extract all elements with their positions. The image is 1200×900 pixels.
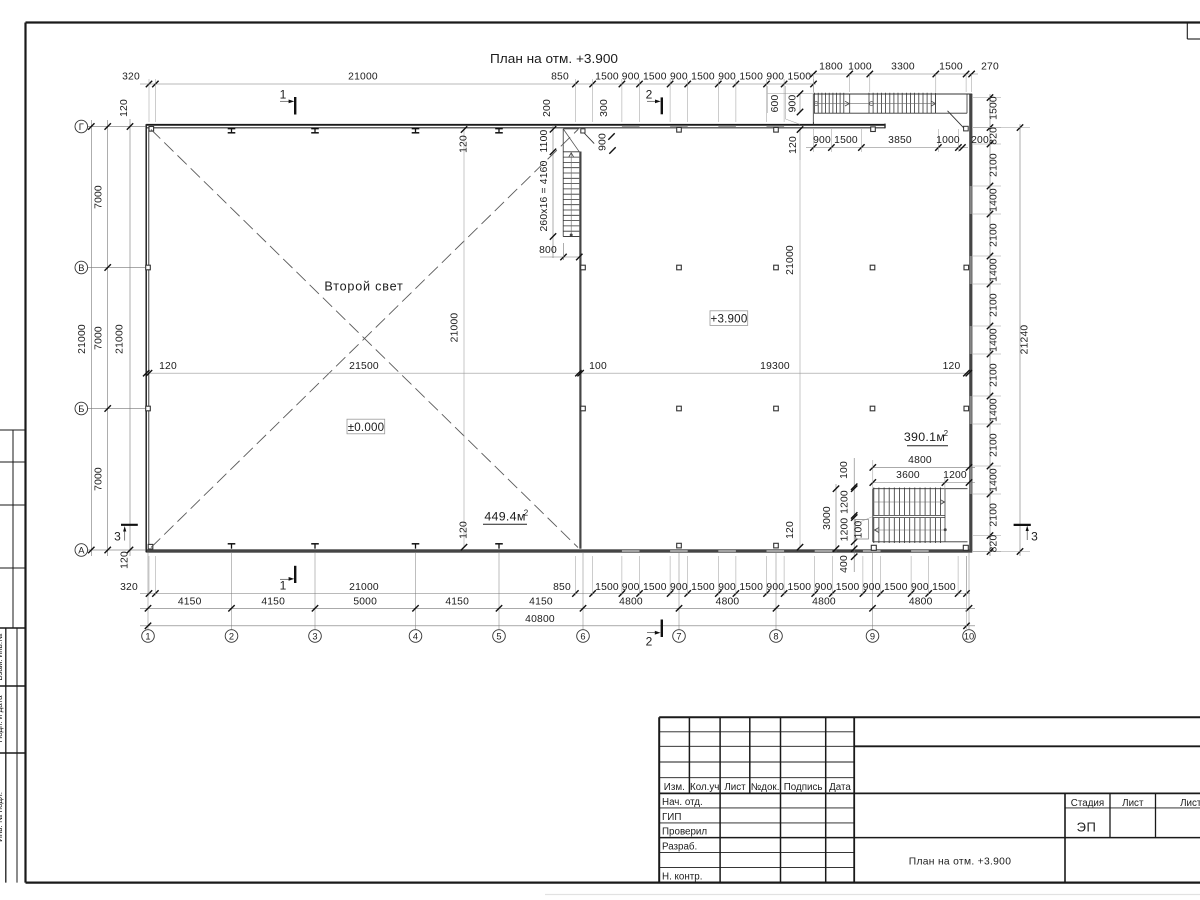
svg-text:4800: 4800 bbox=[908, 455, 932, 466]
svg-text:±0.000: ±0.000 bbox=[348, 421, 385, 434]
svg-text:ЭП: ЭП bbox=[1077, 820, 1097, 835]
svg-text:Подп. и дата: Подп. и дата bbox=[0, 695, 4, 743]
svg-text:800: 800 bbox=[539, 245, 557, 256]
svg-text:План на отм. +3.900: План на отм. +3.900 bbox=[490, 51, 618, 66]
svg-text:1500: 1500 bbox=[884, 582, 908, 593]
svg-text:Стадия: Стадия bbox=[1071, 798, 1104, 809]
svg-text:900: 900 bbox=[766, 582, 784, 593]
svg-text:1500: 1500 bbox=[834, 135, 858, 146]
svg-text:Проверил: Проверил bbox=[662, 827, 707, 838]
svg-text:7000: 7000 bbox=[93, 185, 104, 209]
svg-text:План на отм. +3.900: План на отм. +3.900 bbox=[909, 857, 1011, 868]
svg-text:820: 820 bbox=[989, 535, 1000, 553]
svg-text:Лист: Лист bbox=[724, 782, 746, 793]
svg-text:21500: 21500 bbox=[349, 361, 379, 372]
svg-text:3300: 3300 bbox=[891, 62, 915, 73]
svg-text:1400: 1400 bbox=[989, 258, 1000, 282]
svg-text:21000: 21000 bbox=[785, 245, 796, 275]
svg-text:7000: 7000 bbox=[93, 326, 104, 350]
svg-text:21000: 21000 bbox=[114, 324, 125, 354]
svg-text:320: 320 bbox=[120, 582, 138, 593]
svg-text:3: 3 bbox=[114, 529, 121, 543]
svg-text:21000: 21000 bbox=[77, 324, 88, 354]
svg-text:Н. контр.: Н. контр. bbox=[662, 872, 702, 883]
svg-text:120: 120 bbox=[120, 551, 131, 569]
svg-text:100: 100 bbox=[589, 361, 607, 372]
svg-text:21000: 21000 bbox=[450, 313, 461, 343]
svg-text:4800: 4800 bbox=[812, 597, 836, 608]
svg-text:1500: 1500 bbox=[595, 72, 619, 83]
svg-text:1500: 1500 bbox=[989, 96, 1000, 120]
svg-text:21000: 21000 bbox=[348, 72, 378, 83]
svg-text:8: 8 bbox=[773, 632, 778, 642]
svg-text:1500: 1500 bbox=[691, 582, 715, 593]
svg-text:2: 2 bbox=[944, 429, 949, 438]
svg-text:4150: 4150 bbox=[261, 597, 285, 608]
svg-text:ГИП: ГИП bbox=[662, 812, 681, 823]
svg-text:10: 10 bbox=[964, 632, 974, 642]
svg-text:4150: 4150 bbox=[178, 597, 202, 608]
svg-text:200: 200 bbox=[542, 99, 553, 117]
svg-text:№док.: №док. bbox=[751, 782, 780, 793]
svg-text:1800: 1800 bbox=[819, 62, 843, 73]
svg-text:400: 400 bbox=[839, 555, 850, 573]
svg-text:4150: 4150 bbox=[445, 597, 469, 608]
svg-text:1400: 1400 bbox=[989, 398, 1000, 422]
svg-text:2: 2 bbox=[646, 88, 653, 102]
svg-text:21000: 21000 bbox=[349, 582, 379, 593]
svg-text:Второй свет: Второй свет bbox=[324, 280, 403, 294]
svg-text:260x16 = 4160: 260x16 = 4160 bbox=[539, 160, 550, 231]
svg-text:4800: 4800 bbox=[716, 597, 740, 608]
svg-text:1200: 1200 bbox=[840, 490, 851, 514]
svg-text:1500: 1500 bbox=[643, 582, 667, 593]
svg-text:100: 100 bbox=[854, 521, 865, 539]
svg-text:1400: 1400 bbox=[989, 328, 1000, 352]
svg-text:В: В bbox=[78, 263, 84, 273]
svg-text:900: 900 bbox=[863, 582, 881, 593]
svg-text:Инв. № подл.: Инв. № подл. bbox=[0, 792, 4, 842]
svg-text:120: 120 bbox=[943, 361, 961, 372]
svg-text:200: 200 bbox=[971, 135, 989, 146]
svg-text:900: 900 bbox=[815, 582, 833, 593]
svg-text:2: 2 bbox=[646, 634, 653, 648]
svg-text:1500: 1500 bbox=[836, 582, 860, 593]
svg-text:120: 120 bbox=[785, 521, 796, 539]
svg-text:1500: 1500 bbox=[739, 582, 763, 593]
svg-text:19300: 19300 bbox=[760, 361, 790, 372]
svg-text:900: 900 bbox=[670, 72, 688, 83]
svg-text:1400: 1400 bbox=[989, 468, 1000, 492]
svg-text:6: 6 bbox=[580, 632, 585, 642]
svg-text:120: 120 bbox=[459, 135, 470, 153]
svg-text:21240: 21240 bbox=[1020, 325, 1031, 355]
svg-text:900: 900 bbox=[622, 582, 640, 593]
svg-text:Разраб.: Разраб. bbox=[662, 842, 697, 853]
svg-text:Лист: Лист bbox=[1122, 798, 1144, 809]
svg-text:1500: 1500 bbox=[788, 582, 812, 593]
svg-text:1000: 1000 bbox=[936, 135, 960, 146]
svg-text:820: 820 bbox=[989, 127, 1000, 145]
svg-text:3: 3 bbox=[312, 632, 317, 642]
svg-text:2100: 2100 bbox=[989, 223, 1000, 247]
svg-text:1200: 1200 bbox=[943, 470, 967, 481]
svg-text:900: 900 bbox=[718, 72, 736, 83]
svg-text:5: 5 bbox=[496, 632, 501, 642]
svg-text:1500: 1500 bbox=[788, 72, 812, 83]
svg-text:Изм.: Изм. bbox=[664, 782, 685, 793]
svg-text:4800: 4800 bbox=[909, 597, 933, 608]
svg-text:Дата: Дата bbox=[829, 782, 851, 793]
svg-text:900: 900 bbox=[813, 135, 831, 146]
svg-text:Подпись: Подпись bbox=[784, 782, 823, 793]
svg-text:Взам. инв.№: Взам. инв.№ bbox=[0, 633, 4, 681]
svg-text:850: 850 bbox=[551, 72, 569, 83]
svg-text:Нач. отд.: Нач. отд. bbox=[662, 797, 703, 808]
svg-text:1400: 1400 bbox=[989, 188, 1000, 212]
svg-text:3600: 3600 bbox=[896, 470, 920, 481]
svg-text:120: 120 bbox=[459, 521, 470, 539]
svg-text:1500: 1500 bbox=[691, 72, 715, 83]
svg-text:270: 270 bbox=[981, 62, 999, 73]
svg-text:7000: 7000 bbox=[93, 467, 104, 491]
svg-text:1100: 1100 bbox=[539, 129, 550, 152]
svg-text:1: 1 bbox=[145, 632, 150, 642]
svg-text:1500: 1500 bbox=[932, 582, 956, 593]
svg-text:900: 900 bbox=[911, 582, 929, 593]
svg-text:120: 120 bbox=[159, 361, 177, 372]
svg-text:3: 3 bbox=[1031, 529, 1038, 543]
svg-text:900: 900 bbox=[788, 95, 799, 113]
svg-text:40800: 40800 bbox=[525, 614, 555, 625]
svg-text:2100: 2100 bbox=[989, 433, 1000, 457]
svg-text:120: 120 bbox=[119, 99, 130, 117]
svg-text:Г: Г bbox=[79, 122, 84, 132]
svg-text:120: 120 bbox=[788, 136, 799, 154]
svg-text:900: 900 bbox=[718, 582, 736, 593]
svg-text:2100: 2100 bbox=[989, 153, 1000, 177]
svg-text:900: 900 bbox=[598, 133, 609, 151]
svg-text:100: 100 bbox=[839, 461, 850, 479]
svg-text:2: 2 bbox=[524, 508, 529, 517]
svg-text:1500: 1500 bbox=[595, 582, 619, 593]
svg-text:А: А bbox=[78, 545, 85, 555]
svg-text:4: 4 bbox=[413, 632, 418, 642]
svg-text:4800: 4800 bbox=[619, 597, 643, 608]
svg-text:2100: 2100 bbox=[989, 503, 1000, 527]
svg-text:1500: 1500 bbox=[739, 72, 763, 83]
svg-text:3850: 3850 bbox=[888, 135, 912, 146]
svg-text:1000: 1000 bbox=[848, 62, 872, 73]
svg-text:900: 900 bbox=[670, 582, 688, 593]
svg-text:5000: 5000 bbox=[353, 597, 377, 608]
svg-text:+3.900: +3.900 bbox=[711, 313, 748, 326]
svg-text:1500: 1500 bbox=[939, 62, 963, 73]
svg-text:2100: 2100 bbox=[989, 363, 1000, 387]
svg-text:1200: 1200 bbox=[840, 518, 851, 542]
svg-text:7: 7 bbox=[676, 632, 681, 642]
svg-text:900: 900 bbox=[766, 72, 784, 83]
svg-text:449.4м: 449.4м bbox=[484, 509, 525, 523]
svg-text:3000: 3000 bbox=[822, 506, 833, 530]
svg-text:1: 1 bbox=[280, 579, 287, 593]
svg-text:900: 900 bbox=[622, 72, 640, 83]
svg-text:850: 850 bbox=[553, 582, 571, 593]
svg-text:Листов: Листов bbox=[1180, 798, 1200, 809]
svg-text:1500: 1500 bbox=[643, 72, 667, 83]
svg-text:600: 600 bbox=[770, 95, 781, 113]
svg-text:2100: 2100 bbox=[989, 293, 1000, 317]
svg-text:4150: 4150 bbox=[529, 597, 553, 608]
svg-text:2: 2 bbox=[229, 632, 234, 642]
svg-text:300: 300 bbox=[599, 99, 610, 117]
svg-text:Кол.уч: Кол.уч bbox=[690, 782, 719, 793]
svg-text:320: 320 bbox=[122, 72, 140, 83]
svg-text:1: 1 bbox=[280, 88, 287, 102]
svg-text:Б: Б bbox=[78, 404, 84, 414]
svg-text:390.1м: 390.1м bbox=[904, 430, 945, 444]
svg-text:9: 9 bbox=[870, 632, 875, 642]
